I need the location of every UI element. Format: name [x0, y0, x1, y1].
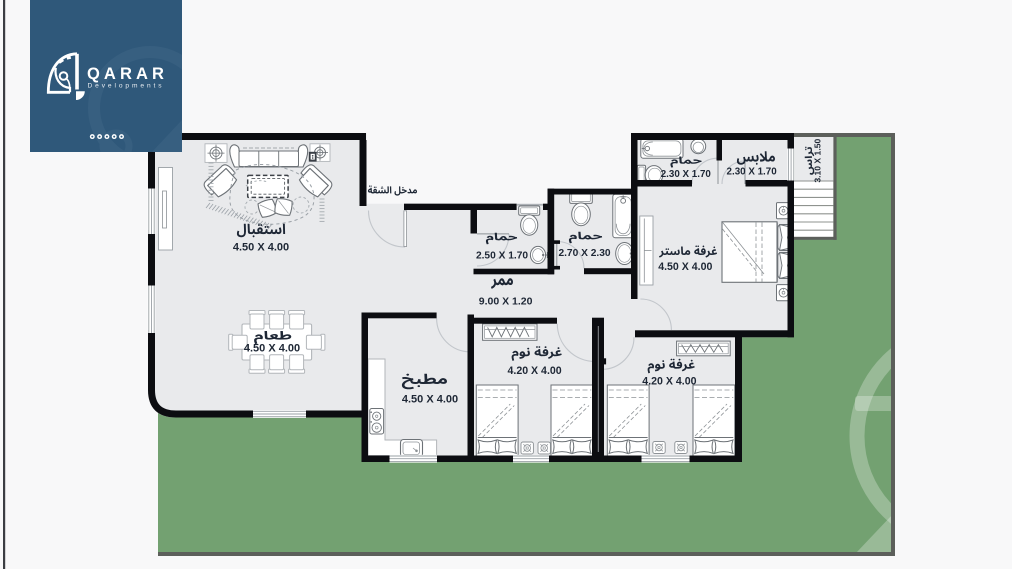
svg-text:4.20 X 4.00: 4.20 X 4.00	[642, 376, 696, 388]
svg-text:3.10 X 1.50: 3.10 X 1.50	[813, 139, 823, 183]
svg-text:4.50 X 4.00: 4.50 X 4.00	[402, 394, 458, 406]
svg-text:4.20 X 4.00: 4.20 X 4.00	[507, 365, 561, 377]
svg-text:4.50 X 4.00: 4.50 X 4.00	[658, 261, 712, 273]
svg-text:Developments: Developments	[88, 83, 165, 90]
svg-text:2.70 X 2.30: 2.70 X 2.30	[558, 248, 610, 259]
svg-text:4.50 X 4.00: 4.50 X 4.00	[244, 343, 300, 355]
svg-text:9.00 X 1.20: 9.00 X 1.20	[479, 296, 533, 308]
svg-text:2.50 X 1.70: 2.50 X 1.70	[476, 251, 528, 262]
svg-text:2.30 X 1.70: 2.30 X 1.70	[727, 167, 778, 178]
svg-text:2.30 X 1.70: 2.30 X 1.70	[661, 169, 712, 180]
svg-text:QARAR: QARAR	[87, 65, 168, 83]
svg-text:4.50 X 4.00: 4.50 X 4.00	[233, 242, 289, 254]
